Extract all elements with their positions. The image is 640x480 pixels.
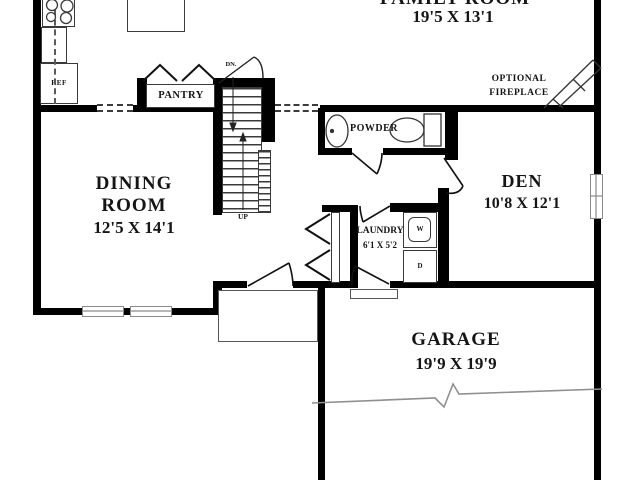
family-room-dims: 19'5 X 13'1	[412, 8, 493, 26]
dining-room-label-1: DINING	[96, 174, 173, 194]
family-room-bottom-wall	[320, 105, 601, 112]
floor-plan: REF W D	[0, 0, 640, 480]
powder-label: POWDER	[350, 124, 398, 135]
stairs-up-label: UP	[238, 213, 248, 221]
den-dims: 10'8 X 12'1	[484, 196, 560, 213]
dryer-label: D	[404, 262, 436, 270]
washer-box: W	[403, 212, 437, 248]
garage-label: GARAGE	[411, 330, 500, 350]
kitchen-island	[127, 0, 185, 32]
kitchen-cabinet-dashed-line	[54, 0, 56, 104]
stair-railing	[258, 150, 271, 213]
stairs-down-label: DN.	[225, 62, 236, 69]
powder-bottom-wall-left	[318, 148, 352, 155]
laundry-label: LAUNDRY	[356, 227, 403, 237]
optional-fireplace-label-1: OPTIONAL	[492, 75, 547, 85]
laundry-door-swing	[360, 206, 390, 222]
den-label: DEN	[501, 172, 542, 191]
garage-dims: 19'9 X 19'9	[415, 355, 496, 373]
garage-left-wall	[318, 287, 325, 480]
exterior-right-wall	[594, 0, 601, 480]
den-window	[590, 174, 603, 219]
garage-stoop	[350, 289, 398, 299]
closet-bifold-doors-icon	[306, 214, 330, 280]
kitchen-bottom-wall	[33, 105, 97, 112]
optional-fireplace-label-2: FIREPLACE	[489, 89, 548, 99]
dining-window-left	[82, 306, 124, 317]
powder-right-wall	[445, 108, 458, 160]
refrigerator-label: REF	[41, 79, 77, 87]
dryer-box: D	[403, 250, 437, 283]
refrigerator: REF	[40, 63, 78, 104]
stairs-right-wall	[262, 78, 275, 142]
dining-room-dims: 12'5 X 14'1	[93, 219, 174, 237]
dining-room-label-2: ROOM	[101, 196, 166, 216]
pantry-bifold-doors-icon	[143, 65, 216, 81]
kitchen-dining-opening	[97, 104, 133, 112]
garage-break-line	[312, 384, 602, 407]
powder-door-swing	[352, 153, 382, 174]
dining-window-right	[130, 306, 172, 317]
stove	[42, 0, 75, 27]
front-stoop	[218, 290, 318, 342]
laundry-dims: 6'1 X 5'2	[363, 241, 397, 250]
fireplace-symbol	[544, 60, 601, 108]
front-door-swing	[248, 263, 293, 286]
powder-sink-icon	[326, 115, 348, 147]
washer-label: W	[404, 225, 436, 233]
family-room-hall-opening	[275, 104, 318, 112]
closet-back-wall	[331, 212, 340, 283]
staircase-treads	[222, 87, 262, 213]
pantry-label: PANTRY	[158, 90, 204, 101]
dining-bottom-wall	[33, 308, 222, 315]
laundry-top-wall	[390, 203, 448, 212]
exterior-left-wall	[33, 0, 41, 315]
laundry-left-wall	[350, 205, 358, 288]
